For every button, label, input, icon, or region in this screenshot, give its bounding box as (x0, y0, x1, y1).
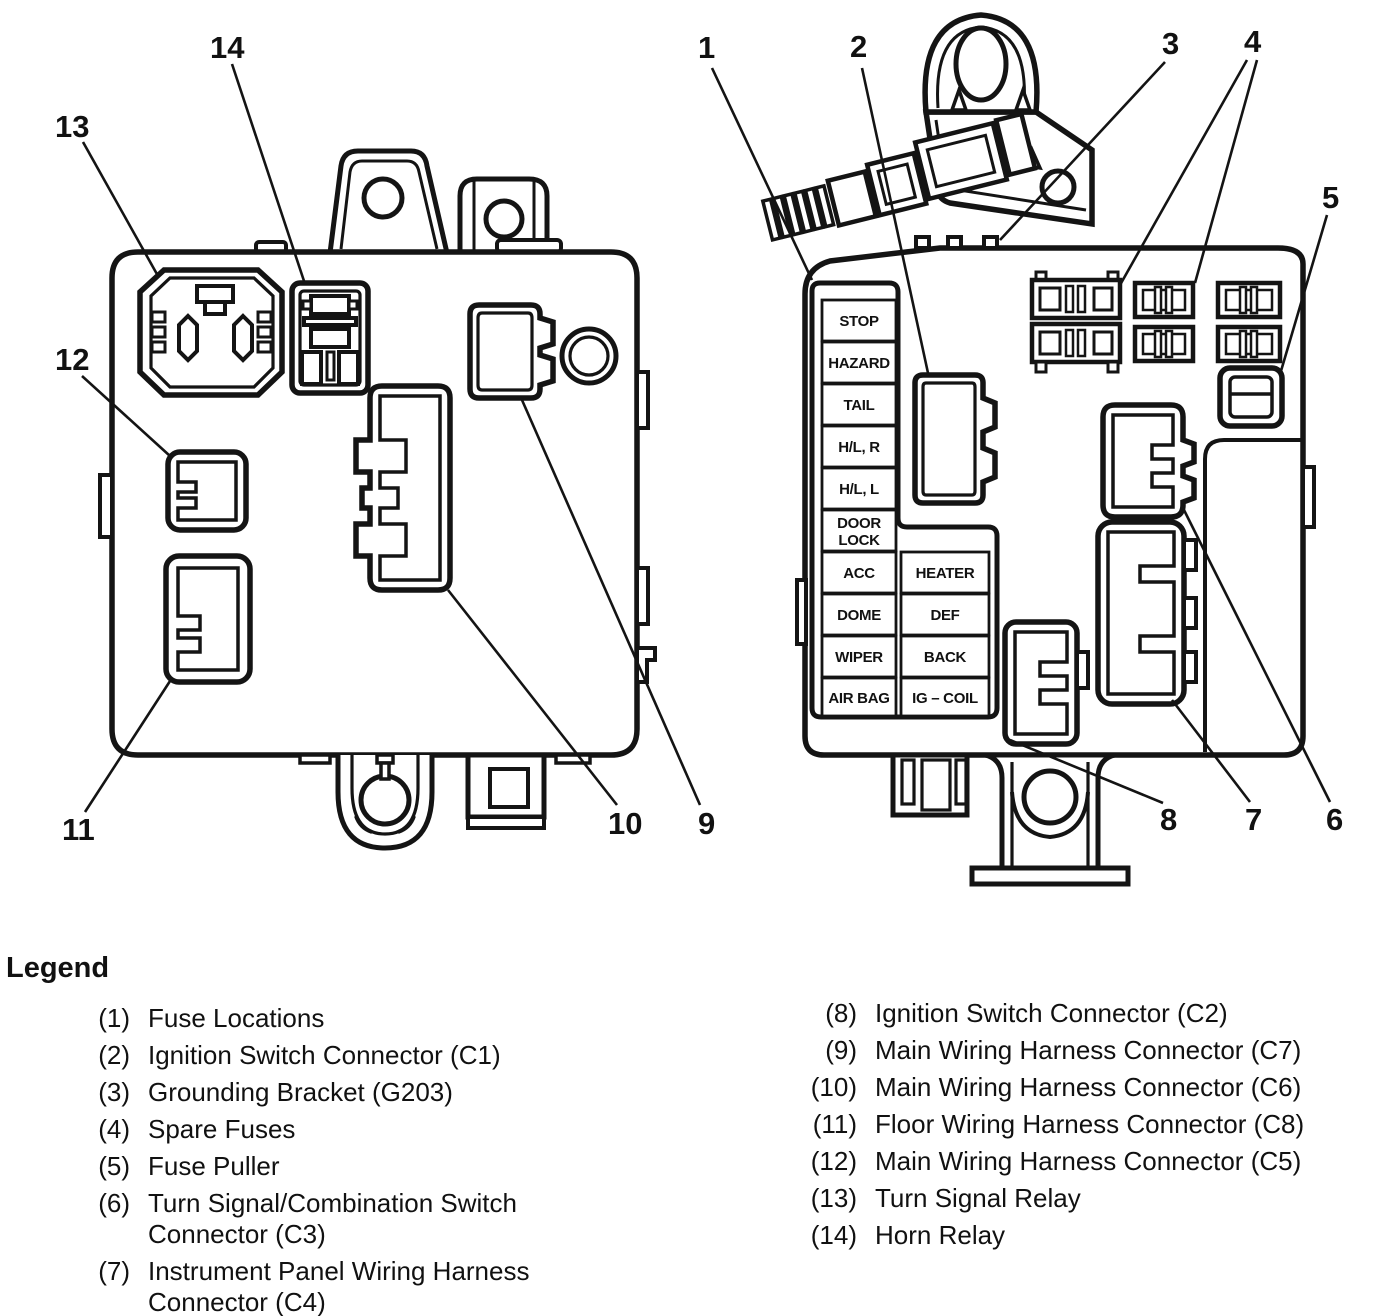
legend-num: (7) (70, 1256, 130, 1316)
fuse-label-wiper: WIPER (835, 649, 883, 666)
callout-12: 12 (55, 342, 89, 377)
fuse-label-acc: ACC (843, 565, 875, 582)
fuse-label-dome: DOME (837, 607, 881, 624)
legend-label: Horn Relay (875, 1220, 1304, 1251)
leader-1 (712, 68, 812, 280)
connector-c8 (166, 556, 250, 682)
legend-item-1: (1) Fuse Locations (70, 1003, 529, 1034)
fuse-block-diagram-page: STOP HAZARD TAIL H/L, R H/L, L DOOR LOCK… (0, 0, 1392, 1316)
legend-item-11: (11) Floor Wiring Harness Connector (C8) (795, 1109, 1304, 1140)
legend-item-13: (13) Turn Signal Relay (795, 1183, 1304, 1214)
legend-label: Main Wiring Harness Connector (C5) (875, 1146, 1304, 1177)
fuse-label-air-bag: AIR BAG (828, 690, 889, 707)
connector-c5 (168, 452, 246, 530)
legend-num: (5) (70, 1151, 130, 1182)
connector-c1 (915, 375, 995, 503)
legend-num: (2) (70, 1040, 130, 1071)
legend-num: (9) (795, 1035, 857, 1066)
spare-fuse-pair-clipped (1032, 272, 1120, 372)
connector-c4 (1098, 522, 1196, 704)
legend-item-9: (9) Main Wiring Harness Connector (C7) (795, 1035, 1304, 1066)
callout-9: 9 (698, 806, 715, 841)
fuse-label-def: DEF (930, 607, 959, 624)
legend-num: (4) (70, 1114, 130, 1145)
legend-num: (6) (70, 1188, 130, 1250)
fuse-block-rear-view (100, 151, 655, 848)
legend-label: Floor Wiring Harness Connector (C8) (875, 1109, 1304, 1140)
callout-2: 2 (850, 29, 867, 64)
legend-column-left: (1) Fuse Locations (2) Ignition Switch C… (70, 1003, 529, 1316)
callout-3: 3 (1162, 26, 1179, 61)
mounting-hole (486, 201, 522, 237)
turn-signal-relay-socket (140, 270, 282, 395)
legend-item-3: (3) Grounding Bracket (G203) (70, 1077, 529, 1108)
fuse-label-tail: TAIL (843, 397, 874, 414)
legend-label: Fuse Locations (148, 1003, 529, 1034)
slotted-bracket (893, 755, 967, 815)
legend-label: Grounding Bracket (G203) (148, 1077, 529, 1108)
legend-num: (13) (795, 1183, 857, 1214)
ignition-harness-loom (757, 114, 1036, 242)
fuse-label-back: BACK (924, 649, 967, 666)
callout-8: 8 (1160, 802, 1177, 837)
pedestal-mount (972, 755, 1128, 884)
callout-5: 5 (1322, 180, 1339, 215)
legend-label: Ignition Switch Connector (C2) (875, 998, 1304, 1029)
legend-item-14: (14) Horn Relay (795, 1220, 1304, 1251)
legend-item-2: (2) Ignition Switch Connector (C1) (70, 1040, 529, 1071)
legend-item-5: (5) Fuse Puller (70, 1151, 529, 1182)
legend-num: (10) (795, 1072, 857, 1103)
legend-label: Main Wiring Harness Connector (C6) (875, 1072, 1304, 1103)
fuse-label-stop: STOP (839, 313, 879, 330)
mounting-hole (364, 179, 402, 217)
callout-4: 4 (1244, 24, 1262, 59)
connector-c6 (356, 386, 450, 590)
connector-c2 (1005, 622, 1088, 744)
connector-c7 (470, 305, 553, 398)
legend-label: Main Wiring Harness Connector (C7) (875, 1035, 1304, 1066)
legend-num: (1) (70, 1003, 130, 1034)
fuse-label-heater: HEATER (916, 565, 975, 582)
legend-num: (14) (795, 1220, 857, 1251)
legend-label: Turn Signal/Combination SwitchConnector … (148, 1188, 529, 1250)
legend-label: Ignition Switch Connector (C1) (148, 1040, 529, 1071)
legend-label: Spare Fuses (148, 1114, 529, 1145)
callout-13: 13 (55, 109, 89, 144)
legend-label: Instrument Panel Wiring HarnessConnector… (148, 1256, 529, 1316)
legend-label: Fuse Puller (148, 1151, 529, 1182)
legend-num: (12) (795, 1146, 857, 1177)
legend-column-right: (8) Ignition Switch Connector (C2) (9) M… (795, 998, 1304, 1257)
legend-item-6: (6) Turn Signal/Combination SwitchConnec… (70, 1188, 529, 1250)
callout-11: 11 (62, 812, 95, 847)
connector-c3 (1103, 405, 1194, 517)
lower-mounting-bracket (338, 755, 432, 848)
fuse-puller (1220, 368, 1282, 426)
legend-item-8: (8) Ignition Switch Connector (C2) (795, 998, 1304, 1029)
fuse-block-front-view: STOP HAZARD TAIL H/L, R H/L, L DOOR LOCK… (757, 15, 1314, 884)
fuse-label-hl-r: H/L, R (838, 439, 880, 456)
fuse-label-hl-l: H/L, L (839, 481, 879, 498)
callout-1: 1 (698, 30, 715, 65)
fuse-label-lock: LOCK (838, 532, 880, 549)
diagram-canvas: STOP HAZARD TAIL H/L, R H/L, L DOOR LOCK… (0, 0, 1392, 940)
legend-item-10: (10) Main Wiring Harness Connector (C6) (795, 1072, 1304, 1103)
callout-7: 7 (1245, 802, 1262, 837)
legend-num: (8) (795, 998, 857, 1029)
legend-item-7: (7) Instrument Panel Wiring HarnessConne… (70, 1256, 529, 1316)
fuse-label-door: DOOR (837, 515, 881, 532)
legend-item-4: (4) Spare Fuses (70, 1114, 529, 1145)
callout-14: 14 (210, 30, 245, 65)
legend-label: Turn Signal Relay (875, 1183, 1304, 1214)
legend-title: Legend (6, 952, 109, 985)
callout-10: 10 (608, 806, 642, 841)
callout-6: 6 (1326, 802, 1343, 837)
legend-num: (11) (795, 1109, 857, 1140)
fuse-label-hazard: HAZARD (828, 355, 890, 372)
legend-num: (3) (70, 1077, 130, 1108)
fuse-label-ig-coil: IG – COIL (912, 690, 978, 707)
lower-square-bracket (468, 755, 544, 828)
legend-item-12: (12) Main Wiring Harness Connector (C5) (795, 1146, 1304, 1177)
horn-relay-socket (292, 283, 368, 393)
